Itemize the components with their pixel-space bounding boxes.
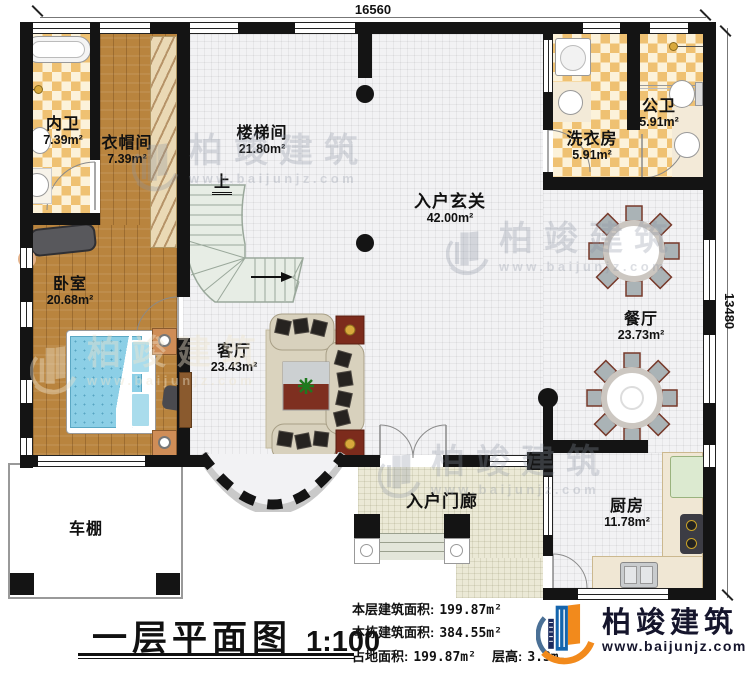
area-stats: 本层建筑面积:199.87m² 本栋建筑面积:384.55m² 占地面积:199… xyxy=(352,599,559,669)
room-label-laundry: 洗衣房 5.91m² xyxy=(566,131,617,162)
title-underline-2 xyxy=(78,658,354,659)
room-label-cloakroom: 衣帽间 7.39m² xyxy=(101,135,152,166)
wall xyxy=(553,440,648,453)
wall xyxy=(20,455,38,467)
wall xyxy=(20,268,33,302)
room-label-foyer: 入户玄关 42.00m² xyxy=(414,193,486,225)
wall xyxy=(543,92,553,130)
floor-plan: 16560 13480 xyxy=(0,0,750,673)
carport-column xyxy=(156,573,180,595)
window xyxy=(38,455,145,467)
wall xyxy=(150,22,180,34)
wall xyxy=(20,213,100,225)
wall xyxy=(543,535,553,556)
entry-double-doors xyxy=(374,414,452,462)
column xyxy=(356,85,374,103)
window xyxy=(20,380,33,403)
window xyxy=(490,455,527,467)
wall xyxy=(177,22,190,297)
dimension-tick xyxy=(699,9,711,21)
top-dimension-label: 16560 xyxy=(340,2,406,17)
door-kitchen xyxy=(551,550,593,592)
window xyxy=(650,22,688,34)
pillow xyxy=(130,340,151,374)
stair-up-label: 上 xyxy=(212,168,232,195)
column-base-circle xyxy=(450,544,463,557)
porch-floor-ext xyxy=(456,558,543,598)
porch-column xyxy=(444,514,470,538)
washer-drum xyxy=(560,45,586,71)
stat-footprint-height: 占地面积:199.87m²层高:3.3m xyxy=(352,646,559,669)
company-logo: 柏竣建筑 www.baijunjz.com xyxy=(536,597,747,665)
window xyxy=(543,40,553,92)
window xyxy=(295,22,355,34)
wall xyxy=(703,300,716,335)
wall xyxy=(703,467,716,600)
wall xyxy=(358,34,372,78)
company-url: www.baijunjz.com xyxy=(602,638,747,654)
room-label-stairwell: 楼梯间 21.80m² xyxy=(236,125,287,156)
porch-column xyxy=(354,514,380,538)
sink xyxy=(558,90,583,115)
staircase xyxy=(181,182,307,306)
wall xyxy=(238,22,295,34)
window xyxy=(703,240,716,300)
desk xyxy=(179,372,192,428)
column xyxy=(538,388,558,408)
dining-table xyxy=(587,204,681,298)
dining-table xyxy=(585,351,679,445)
stat-building-area: 本栋建筑面积:384.55m² xyxy=(352,622,559,645)
room-label-dining: 餐厅 23.73m² xyxy=(618,311,665,342)
company-name: 柏竣建筑 xyxy=(602,608,747,638)
wall xyxy=(20,403,33,438)
lamp xyxy=(158,436,171,449)
column-base-circle xyxy=(360,544,373,557)
fridge xyxy=(670,456,706,498)
wall xyxy=(703,22,716,240)
room-label-porch: 入户门廊 xyxy=(406,493,478,512)
right-dimension-label: 13480 xyxy=(722,293,737,329)
faucet xyxy=(34,85,43,94)
room-label-bedroom: 卧室 20.68m² xyxy=(47,276,94,307)
wall xyxy=(90,22,100,160)
room-label-kitchen: 厨房 11.78m² xyxy=(604,498,650,529)
sink-basin xyxy=(624,566,637,584)
window xyxy=(703,445,716,467)
dimension-tick xyxy=(719,25,731,37)
wall xyxy=(20,327,33,380)
sink xyxy=(674,132,700,158)
door-bath1 xyxy=(45,160,99,214)
window xyxy=(703,335,716,403)
room-label-bath1: 内卫 7.39m² xyxy=(43,116,83,147)
wall xyxy=(543,398,553,477)
window xyxy=(583,22,620,34)
bay-window xyxy=(198,452,348,512)
room-label-living: 客厅 23.43m² xyxy=(211,343,258,374)
company-logo-icon xyxy=(536,597,596,665)
faucet xyxy=(669,42,678,51)
pillow xyxy=(130,392,151,428)
burner xyxy=(686,520,697,531)
window xyxy=(20,248,33,268)
wall xyxy=(543,177,716,190)
burner xyxy=(686,538,697,549)
wall xyxy=(145,455,205,467)
room-label-carport: 车棚 xyxy=(69,521,103,539)
faucet-line xyxy=(678,46,703,47)
sofa-set xyxy=(262,312,366,462)
wall xyxy=(443,455,490,467)
window xyxy=(20,302,33,327)
wall xyxy=(627,22,640,130)
wardrobe xyxy=(150,36,177,248)
stat-floor-area: 本层建筑面积:199.87m² xyxy=(352,599,559,622)
top-dimension-line xyxy=(40,17,706,18)
wall xyxy=(338,455,380,467)
column xyxy=(356,234,374,252)
toilet-tank xyxy=(695,82,703,106)
bathtub-inner xyxy=(31,41,85,58)
window xyxy=(543,477,553,535)
sink-basin xyxy=(640,566,653,584)
lamp xyxy=(158,334,171,347)
room-label-bath2: 公卫 5.91m² xyxy=(639,98,679,129)
wall xyxy=(703,403,716,445)
wall xyxy=(543,22,553,40)
title-underline xyxy=(78,653,354,656)
carport-column xyxy=(10,573,34,595)
dimension-tick xyxy=(31,5,43,17)
